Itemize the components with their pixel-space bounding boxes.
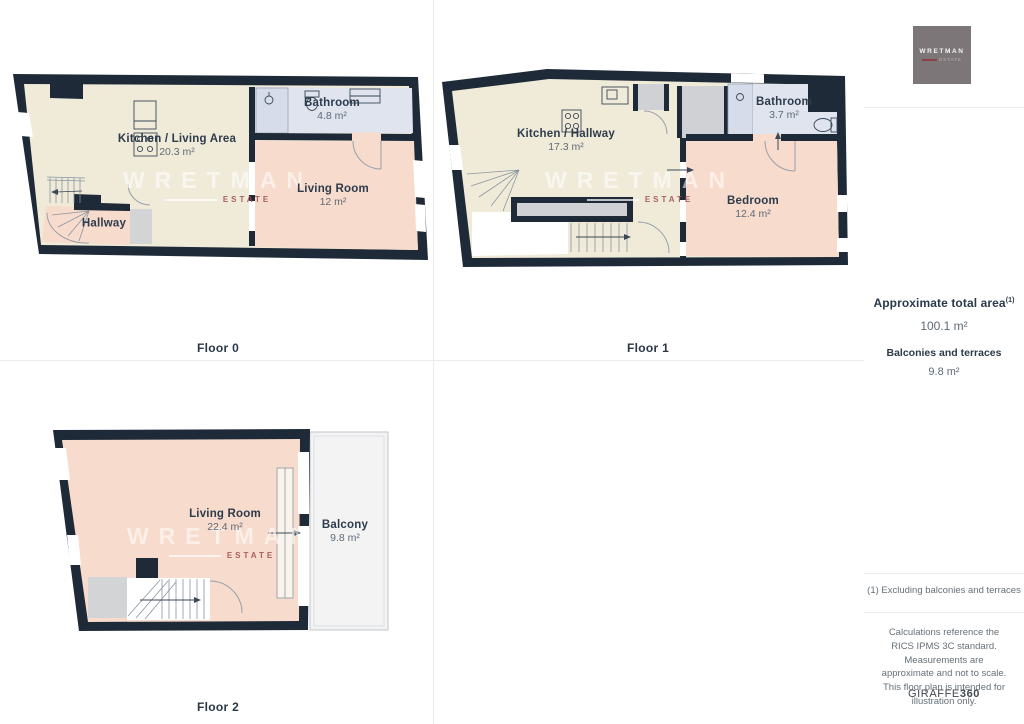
floor1-landing: [517, 203, 627, 216]
sidebar-divider-1: [864, 107, 1024, 108]
label-bathroom-1: Bathroom 3.7 m²: [756, 96, 812, 122]
floor0-window-right-2: [415, 204, 426, 232]
floor1-window-right-2: [837, 238, 848, 252]
floor-0-caption: Floor 0: [197, 341, 239, 355]
floor1-closet: [638, 84, 664, 110]
floor-0-plan: [0, 0, 433, 360]
wretman-estate-logo: WRETMAN ESTATE: [913, 26, 971, 84]
floor0-window-right-1: [413, 160, 425, 198]
sidebar-divider-3: [864, 612, 1024, 613]
floor2-storage: [88, 577, 127, 618]
total-area-value: 100.1 m²: [864, 319, 1024, 333]
label-living-0: Living Room 12 m²: [297, 183, 369, 209]
giraffe360-brand: GIRAFFE360: [864, 688, 1024, 700]
balconies-value: 9.8 m²: [864, 366, 1024, 378]
label-balcony: Balcony 9.8 m²: [322, 519, 368, 545]
label-kitchen-hallway: Kitchen / Hallway 17.3 m²: [517, 128, 615, 154]
area-summary: Approximate total area(1) 100.1 m² Balco…: [864, 296, 1024, 378]
label-living-2: Living Room 22.4 m²: [189, 508, 261, 534]
label-bathroom-0: Bathroom 4.8 m²: [304, 97, 360, 123]
label-bedroom: Bedroom 12.4 m²: [727, 195, 779, 221]
footnote-text: (1) Excluding balconies and terraces: [864, 585, 1024, 596]
floor1-window-top: [731, 74, 764, 84]
floor1-shaft: [682, 86, 724, 138]
floor0-hallway-cupboard: [130, 209, 152, 244]
floorplan-page: WRETMAN ESTATE WRETMAN ESTATE WRETMAN ES…: [0, 0, 1024, 724]
balconies-title: Balconies and terraces: [864, 347, 1024, 359]
label-hallway: Hallway: [82, 218, 126, 231]
floor-1-plan: [431, 0, 865, 360]
sidebar-divider-2: [864, 573, 1024, 574]
footnote-ref: (1): [1006, 297, 1015, 304]
label-kitchen-living: Kitchen / Living Area 20.3 m²: [118, 133, 236, 159]
logo-dash: [922, 59, 937, 61]
total-area-title: Approximate total area(1): [864, 296, 1024, 310]
info-sidebar: WRETMAN ESTATE Approximate total area(1)…: [864, 0, 1024, 724]
floor1-window-right-1: [837, 195, 847, 212]
floor0-shower-stall: [256, 88, 288, 133]
floor1-shower: [728, 84, 753, 135]
floor-1-caption: Floor 1: [627, 341, 669, 355]
floor-2-caption: Floor 2: [197, 700, 239, 714]
